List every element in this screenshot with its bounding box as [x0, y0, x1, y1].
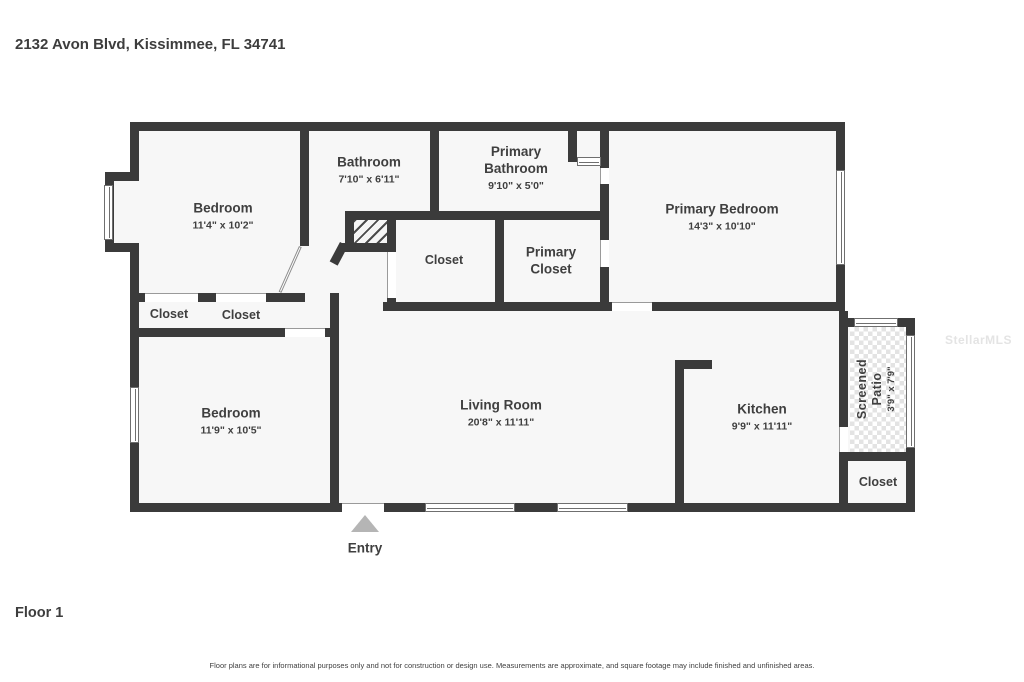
room-dims: 11'4" x 10'2": [192, 218, 253, 234]
floor-label: Floor 1: [15, 605, 63, 621]
window: [425, 503, 515, 512]
door-opening: [285, 328, 325, 337]
disclaimer-text: Floor plans are for informational purpos…: [0, 661, 1024, 670]
room-label-bathroom: Bathroom 7'10" x 6'11": [337, 155, 401, 188]
window: [104, 185, 113, 240]
watermark: StellarMLS: [945, 333, 1012, 347]
room-dims: 7'10" x 6'11": [337, 172, 401, 188]
wall: [130, 122, 139, 181]
room-dims: 3'9" x 7'9": [886, 352, 897, 426]
room-name: Closet: [150, 306, 188, 322]
room-name: Screened Patio: [855, 352, 885, 426]
room-name: Living Room: [460, 398, 542, 414]
wall: [198, 293, 216, 302]
room-label-screened-patio: Screened Patio 3'9" x 7'9": [855, 352, 897, 426]
room-label-closet-hall: Closet: [425, 252, 463, 268]
room-label-closet-left-a: Closet: [150, 306, 188, 322]
window: [854, 318, 898, 327]
window: [836, 170, 845, 265]
room-label-closet-patio: Closet: [859, 474, 897, 490]
room-label-primary-bedroom: Primary Bedroom 14'3" x 10'10": [665, 202, 778, 235]
wall: [330, 293, 339, 512]
wall: [387, 298, 396, 311]
room-label-closet-left-b: Closet: [222, 307, 260, 323]
entry-label: Entry: [348, 541, 383, 556]
wall: [628, 503, 915, 512]
room-label-bedroom-top: Bedroom 11'4" x 10'2": [192, 201, 253, 234]
wall: [347, 211, 600, 220]
wall: [266, 293, 305, 302]
wall: [652, 302, 845, 311]
door-opening: [612, 302, 652, 311]
room-name: Primary Closet: [521, 245, 581, 278]
wall: [600, 122, 609, 168]
property-address: 2132 Avon Blvd, Kissimmee, FL 34741: [15, 36, 285, 53]
wall: [600, 267, 609, 311]
wall: [430, 122, 439, 220]
room-label-living-room: Living Room 20'8" x 11'11": [460, 398, 542, 431]
room-label-primary-bathroom: Primary Bathroom 9'10" x 5'0": [474, 144, 558, 194]
window: [130, 387, 139, 443]
wall: [130, 243, 139, 512]
wall: [387, 211, 396, 252]
wall: [839, 452, 848, 512]
wall: [130, 328, 285, 337]
wall: [130, 122, 845, 131]
door-opening: [387, 252, 396, 298]
room-name: Bedroom: [192, 201, 253, 217]
room-label-kitchen: Kitchen 9'9" x 11'11": [732, 402, 793, 435]
window: [557, 503, 628, 512]
room-dims: 14'3" x 10'10": [665, 219, 778, 235]
room-dims: 9'9" x 11'11": [732, 419, 793, 435]
room-name: Kitchen: [732, 402, 793, 418]
shower-hatch-area: [354, 220, 387, 243]
room-label-primary-closet: Primary Closet: [521, 245, 581, 278]
wall: [839, 311, 848, 427]
room-name: Bedroom: [200, 406, 261, 422]
room-name: Primary Bathroom: [474, 144, 558, 177]
room-dims: 11'9" x 10'5": [200, 423, 261, 439]
room-name: Closet: [222, 307, 260, 323]
entry-arrow-icon: [351, 515, 379, 532]
wall: [130, 503, 342, 512]
door-opening: [145, 293, 198, 302]
entry-door-opening: [342, 503, 384, 512]
room-name: Closet: [425, 252, 463, 268]
room-dims: 9'10" x 5'0": [474, 178, 558, 194]
window: [906, 335, 915, 448]
wall: [845, 452, 915, 461]
window: [577, 157, 601, 166]
wall: [600, 184, 609, 240]
door-opening: [839, 427, 848, 452]
wall: [384, 503, 425, 512]
wall: [300, 122, 309, 246]
room-dims: 20'8" x 11'11": [460, 415, 542, 431]
door-opening: [600, 240, 609, 267]
wall: [675, 360, 684, 512]
door-opening: [216, 293, 266, 302]
floor-plan-page: 2132 Avon Blvd, Kissimmee, FL 34741: [0, 0, 1024, 682]
wall: [568, 122, 577, 162]
room-label-bedroom-bottom: Bedroom 11'9" x 10'5": [200, 406, 261, 439]
wall: [495, 211, 504, 311]
room-name: Primary Bedroom: [665, 202, 778, 218]
wall: [515, 503, 557, 512]
door-opening: [600, 168, 609, 184]
room-name: Closet: [859, 474, 897, 490]
room-name: Bathroom: [337, 155, 401, 171]
